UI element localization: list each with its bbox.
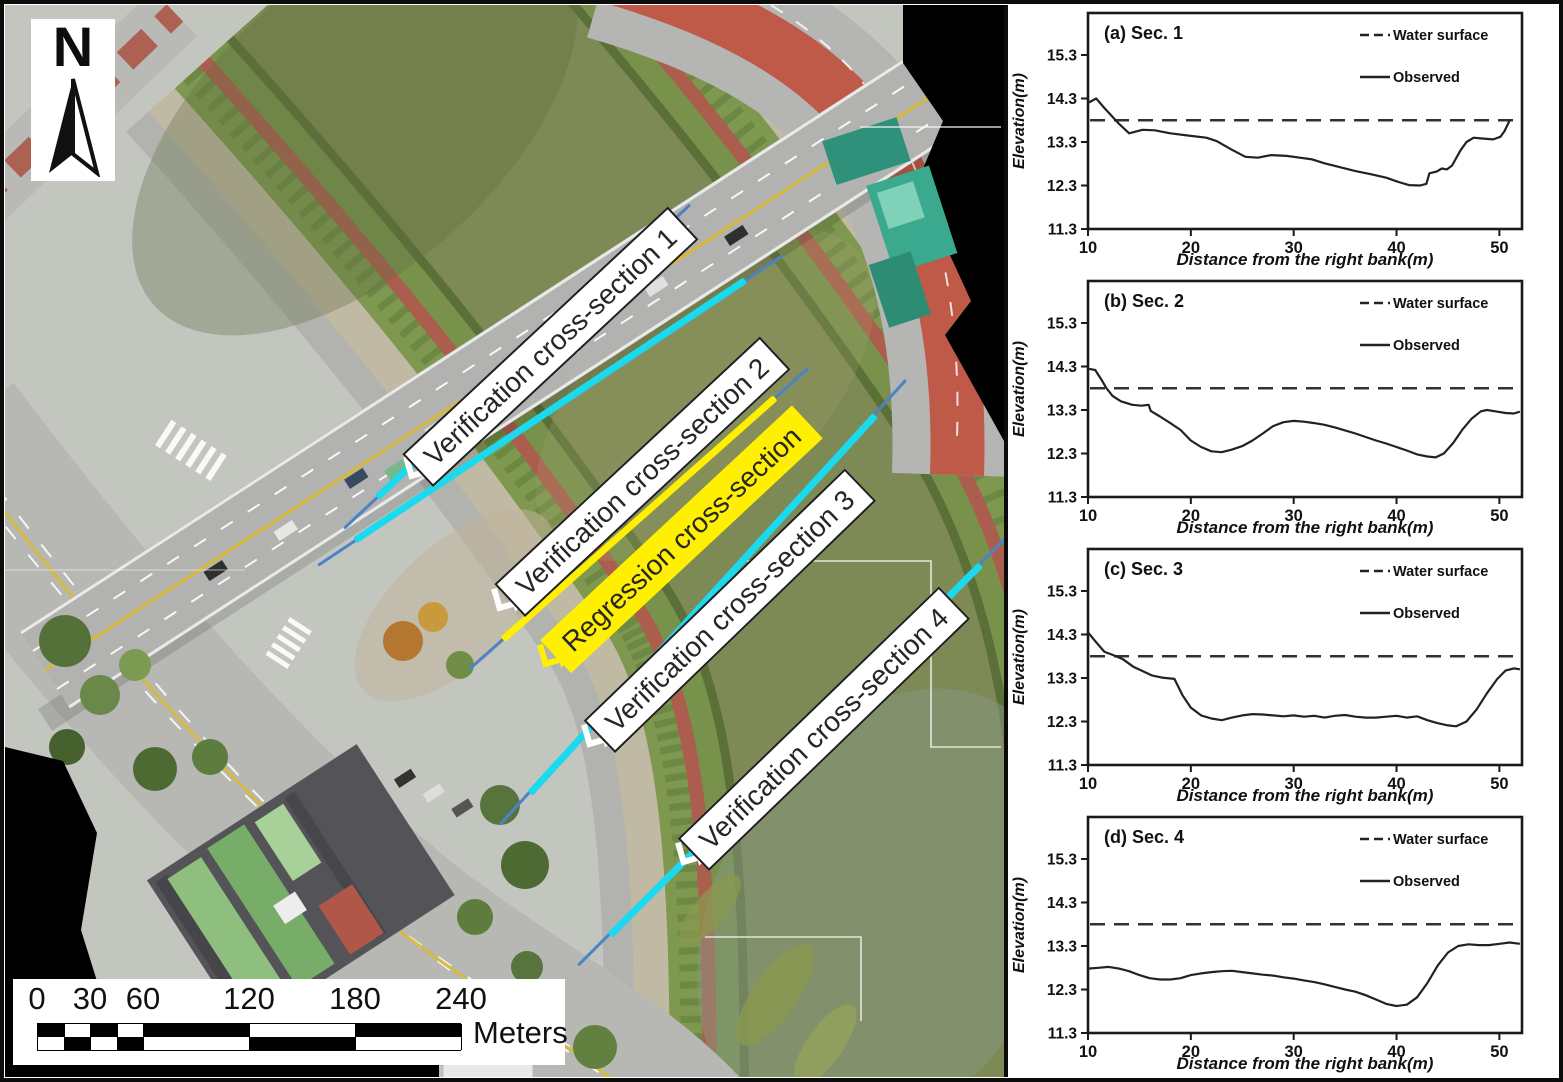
svg-text:(b) Sec. 2: (b) Sec. 2 [1104,291,1184,311]
scale-tick: 240 [435,981,487,1017]
svg-text:(a) Sec. 1: (a) Sec. 1 [1104,23,1183,43]
svg-text:Observed: Observed [1393,70,1460,86]
svg-text:10: 10 [1079,239,1097,257]
svg-text:10: 10 [1079,775,1097,793]
svg-text:Elevation(m): Elevation(m) [1011,877,1028,973]
svg-text:12.3: 12.3 [1047,178,1078,195]
figure: Verification cross-section 1 Verificatio… [0,0,1563,1082]
svg-text:12.3: 12.3 [1047,714,1078,731]
aerial-photo-background [5,5,1004,1077]
svg-text:14.3: 14.3 [1047,627,1078,644]
svg-text:15.3: 15.3 [1047,316,1078,333]
svg-text:14.3: 14.3 [1047,359,1078,376]
svg-text:15.3: 15.3 [1047,48,1078,65]
svg-text:13.3: 13.3 [1047,671,1078,688]
scale-bar: 0 30 60 120 180 240 Meters [13,979,565,1065]
svg-text:50: 50 [1490,775,1508,793]
svg-text:Elevation(m): Elevation(m) [1011,341,1028,437]
svg-text:50: 50 [1490,1043,1508,1061]
svg-text:Observed: Observed [1393,338,1460,354]
svg-text:(d) Sec. 4: (d) Sec. 4 [1104,827,1184,847]
svg-text:13.3: 13.3 [1047,403,1078,420]
svg-text:13.3: 13.3 [1047,135,1078,152]
svg-text:Distance from the right bank(m: Distance from the right bank(m) [1177,518,1434,537]
svg-text:Elevation(m): Elevation(m) [1011,73,1028,169]
chart-sec-1: 11.312.313.314.315.31020304050Elevation(… [1008,5,1560,273]
scale-bar-blocks [37,1023,461,1051]
charts-panel: 11.312.313.314.315.31020304050Elevation(… [1004,5,1562,1077]
chart-sec-3: 11.312.313.314.315.31020304050Elevation(… [1008,541,1560,809]
svg-text:15.3: 15.3 [1047,584,1078,601]
scale-tick: 30 [73,981,107,1017]
scale-tick: 120 [223,981,275,1017]
svg-text:Water surface: Water surface [1393,28,1488,44]
chart-sec-2: 11.312.313.314.315.31020304050Elevation(… [1008,273,1560,541]
svg-text:14.3: 14.3 [1047,91,1078,108]
svg-text:12.3: 12.3 [1047,982,1078,999]
svg-text:Distance from the right bank(m: Distance from the right bank(m) [1177,250,1434,269]
svg-text:Elevation(m): Elevation(m) [1011,609,1028,705]
scale-tick: 0 [28,981,45,1017]
scale-tick: 60 [126,981,160,1017]
svg-text:13.3: 13.3 [1047,939,1078,956]
svg-text:10: 10 [1079,507,1097,525]
north-arrow-icon [42,75,104,177]
scale-tick: 180 [329,981,381,1017]
svg-text:10: 10 [1079,1043,1097,1061]
chart-sec-4: 11.312.313.314.315.31020304050Elevation(… [1008,809,1560,1077]
svg-text:15.3: 15.3 [1047,852,1078,869]
svg-text:Distance from the right bank(m: Distance from the right bank(m) [1177,1054,1434,1073]
svg-text:Distance from the right bank(m: Distance from the right bank(m) [1177,786,1434,805]
svg-text:Observed: Observed [1393,874,1460,890]
scale-unit: Meters [473,1015,568,1051]
svg-text:11.3: 11.3 [1048,758,1078,775]
svg-text:11.3: 11.3 [1048,490,1078,507]
north-label: N [31,19,115,75]
svg-text:Observed: Observed [1393,606,1460,622]
svg-text:11.3: 11.3 [1048,1026,1078,1043]
svg-text:(c) Sec. 3: (c) Sec. 3 [1104,559,1183,579]
svg-text:Water surface: Water surface [1393,296,1488,312]
north-arrow: N [31,19,115,181]
svg-text:Water surface: Water surface [1393,564,1488,580]
svg-text:Water surface: Water surface [1393,832,1488,848]
orthophoto-map: Verification cross-section 1 Verificatio… [5,5,1004,1077]
svg-text:12.3: 12.3 [1047,446,1078,463]
svg-text:14.3: 14.3 [1047,895,1078,912]
svg-text:50: 50 [1490,239,1508,257]
svg-text:11.3: 11.3 [1048,222,1078,239]
svg-text:50: 50 [1490,507,1508,525]
